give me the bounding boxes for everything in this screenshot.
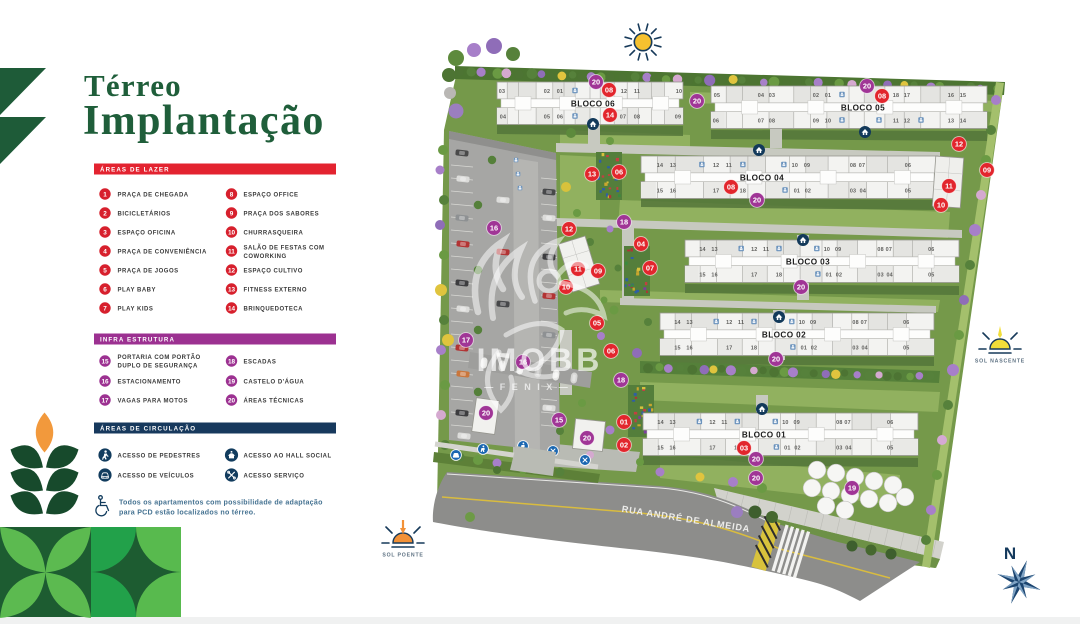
svg-text:BLOCO 02: BLOCO 02 [762, 330, 806, 339]
svg-text:06: 06 [557, 114, 563, 120]
svg-text:ACESSO DE VEÍCULOS: ACESSO DE VEÍCULOS [118, 471, 195, 479]
svg-text:16: 16 [670, 188, 676, 194]
svg-text:05: 05 [714, 93, 720, 99]
svg-text:20: 20 [693, 97, 701, 106]
svg-text:06: 06 [928, 247, 934, 253]
svg-text:03: 03 [877, 272, 883, 278]
svg-text:ACESSO AO HALL SOCIAL: ACESSO AO HALL SOCIAL [244, 453, 332, 459]
svg-text:11: 11 [945, 182, 953, 191]
svg-text:BLOCO 04: BLOCO 04 [740, 173, 784, 182]
svg-text:08: 08 [605, 86, 613, 95]
svg-text:04: 04 [500, 114, 506, 120]
svg-text:06: 06 [607, 347, 615, 356]
svg-text:08: 08 [634, 114, 640, 120]
svg-text:07: 07 [861, 320, 867, 326]
svg-text:15: 15 [657, 445, 663, 451]
svg-text:15: 15 [699, 272, 705, 278]
svg-text:01: 01 [620, 418, 628, 427]
svg-text:04: 04 [758, 93, 764, 99]
svg-text:17: 17 [462, 336, 470, 345]
svg-text:INFRA ESTRUTURA: INFRA ESTRUTURA [100, 337, 175, 344]
svg-text:10: 10 [825, 118, 831, 124]
svg-text:13: 13 [669, 420, 675, 426]
svg-text:10: 10 [824, 247, 830, 253]
svg-text:15: 15 [101, 358, 109, 365]
svg-text:PRAÇA DE JOGOS: PRAÇA DE JOGOS [118, 268, 179, 274]
svg-text:SALÃO DE FESTAS COM: SALÃO DE FESTAS COM [244, 245, 325, 252]
svg-text:07: 07 [844, 420, 850, 426]
svg-text:1: 1 [103, 191, 107, 198]
svg-text:04: 04 [637, 240, 646, 249]
svg-text:01: 01 [826, 272, 832, 278]
svg-text:ESPAÇO CULTIVO: ESPAÇO CULTIVO [244, 268, 303, 274]
svg-text:17: 17 [904, 93, 910, 99]
svg-text:17: 17 [713, 188, 719, 194]
svg-text:04: 04 [861, 345, 867, 351]
svg-text:20: 20 [482, 409, 490, 418]
svg-text:ÁREAS DE CIRCULAÇÃO: ÁREAS DE CIRCULAÇÃO [100, 426, 196, 433]
svg-text:19: 19 [228, 378, 236, 385]
svg-text:8: 8 [230, 191, 234, 198]
svg-text:09: 09 [594, 267, 602, 276]
svg-text:08: 08 [727, 183, 735, 192]
svg-text:12: 12 [709, 420, 715, 426]
svg-text:PLAY BABY: PLAY BABY [118, 287, 157, 293]
svg-text:04: 04 [860, 188, 866, 194]
svg-text:5: 5 [103, 267, 107, 274]
svg-text:18: 18 [776, 272, 782, 278]
svg-text:Todos os apartamentos com poss: Todos os apartamentos com possibilidade … [119, 499, 323, 507]
svg-text:14: 14 [657, 163, 663, 169]
svg-text:11: 11 [763, 247, 769, 253]
svg-text:7: 7 [103, 305, 107, 312]
svg-text:04: 04 [886, 272, 892, 278]
svg-text:PRAÇA DE CHEGADA: PRAÇA DE CHEGADA [118, 192, 189, 198]
svg-text:IMOBB: IMOBB [477, 342, 604, 378]
svg-text:08: 08 [877, 247, 883, 253]
svg-text:18: 18 [740, 188, 746, 194]
svg-text:ACESSO SERVIÇO: ACESSO SERVIÇO [244, 473, 305, 479]
svg-text:05: 05 [887, 445, 893, 451]
svg-text:07: 07 [758, 118, 764, 124]
svg-text:09: 09 [983, 166, 991, 175]
svg-text:15: 15 [555, 416, 563, 425]
svg-text:para PCD estão localizados no: para PCD estão localizados no térreo. [119, 509, 256, 517]
svg-text:DUPLO DE SEGURANÇA: DUPLO DE SEGURANÇA [118, 363, 199, 369]
svg-text:11: 11 [738, 320, 744, 326]
svg-text:ESPAÇO OFFICE: ESPAÇO OFFICE [244, 192, 299, 198]
svg-text:13: 13 [670, 163, 676, 169]
svg-text:01: 01 [825, 93, 831, 99]
svg-text:06: 06 [905, 163, 911, 169]
svg-text:16: 16 [669, 445, 675, 451]
svg-text:12: 12 [228, 267, 236, 274]
svg-text:13: 13 [228, 286, 236, 293]
svg-text:10: 10 [792, 163, 798, 169]
svg-text:11: 11 [726, 163, 732, 169]
svg-text:02: 02 [544, 89, 550, 95]
svg-text:11: 11 [228, 248, 235, 255]
svg-text:Implantação: Implantação [83, 98, 325, 144]
svg-text:17: 17 [726, 345, 732, 351]
svg-text:15: 15 [657, 188, 663, 194]
svg-text:10: 10 [228, 229, 236, 236]
svg-text:VAGAS PARA MOTOS: VAGAS PARA MOTOS [118, 398, 188, 404]
svg-text:03: 03 [740, 444, 748, 453]
svg-text:10: 10 [799, 320, 805, 326]
svg-text:BLOCO 01: BLOCO 01 [742, 430, 786, 439]
svg-text:10: 10 [937, 201, 945, 210]
svg-text:ÁREAS TÉCNICAS: ÁREAS TÉCNICAS [244, 396, 304, 404]
svg-text:13: 13 [588, 170, 596, 179]
svg-text:9: 9 [230, 210, 234, 217]
svg-text:6: 6 [103, 286, 107, 293]
svg-text:20: 20 [592, 78, 600, 87]
svg-text:07: 07 [646, 264, 654, 273]
svg-text:04: 04 [845, 445, 851, 451]
svg-text:16: 16 [711, 272, 717, 278]
svg-text:COWORKING: COWORKING [244, 254, 287, 260]
svg-text:16: 16 [490, 224, 498, 233]
svg-text:11: 11 [634, 89, 640, 95]
svg-text:08: 08 [836, 420, 842, 426]
svg-text:BLOCO 03: BLOCO 03 [786, 257, 830, 266]
svg-text:09: 09 [794, 420, 800, 426]
svg-text:20: 20 [583, 434, 591, 443]
svg-text:20: 20 [772, 355, 780, 364]
svg-text:20: 20 [753, 196, 761, 205]
svg-text:ESCADAS: ESCADAS [244, 359, 277, 365]
svg-text:14: 14 [657, 420, 663, 426]
svg-text:18: 18 [751, 345, 757, 351]
svg-text:06: 06 [887, 420, 893, 426]
svg-text:01: 01 [557, 89, 563, 95]
svg-text:01: 01 [794, 188, 800, 194]
svg-text:09: 09 [835, 247, 841, 253]
svg-text:06: 06 [903, 320, 909, 326]
svg-text:SOL POENTE: SOL POENTE [382, 553, 423, 559]
svg-text:SOL NASCENTE: SOL NASCENTE [975, 359, 1025, 365]
svg-text:18: 18 [617, 376, 625, 385]
svg-text:19: 19 [848, 484, 856, 493]
svg-text:09: 09 [813, 118, 819, 124]
svg-text:17: 17 [709, 445, 715, 451]
svg-text:05: 05 [544, 114, 550, 120]
svg-text:14: 14 [699, 247, 705, 253]
svg-text:CASTELO D'ÁGUA: CASTELO D'ÁGUA [244, 378, 305, 385]
svg-text:06: 06 [615, 168, 623, 177]
svg-text:07: 07 [886, 247, 892, 253]
svg-text:11: 11 [893, 118, 899, 124]
svg-text:10: 10 [676, 89, 682, 95]
svg-text:08: 08 [852, 320, 858, 326]
svg-text:08: 08 [878, 92, 886, 101]
svg-text:01: 01 [801, 345, 807, 351]
svg-text:07: 07 [620, 114, 626, 120]
svg-text:ESTACIONAMENTO: ESTACIONAMENTO [118, 379, 181, 385]
svg-text:PRAÇA DE CONVENIÊNCIA: PRAÇA DE CONVENIÊNCIA [118, 247, 207, 255]
svg-text:17: 17 [101, 397, 109, 404]
svg-text:12: 12 [726, 320, 732, 326]
svg-text:12: 12 [955, 140, 963, 149]
svg-text:15: 15 [674, 345, 680, 351]
svg-text:06: 06 [713, 118, 719, 124]
svg-text:11: 11 [721, 420, 727, 426]
svg-text:18: 18 [228, 358, 236, 365]
svg-text:02: 02 [811, 345, 817, 351]
svg-text:N: N [1004, 544, 1016, 563]
svg-text:02: 02 [805, 188, 811, 194]
svg-text:— F E N I X —: — F E N I X — [484, 382, 570, 392]
svg-text:ÁREAS DE LAZER: ÁREAS DE LAZER [100, 167, 170, 174]
svg-text:13: 13 [686, 320, 692, 326]
svg-text:08: 08 [769, 118, 775, 124]
svg-text:16: 16 [686, 345, 692, 351]
svg-text:03: 03 [850, 188, 856, 194]
svg-text:03: 03 [499, 89, 505, 95]
svg-text:12: 12 [713, 163, 719, 169]
svg-text:20: 20 [797, 283, 805, 292]
svg-text:PORTARIA COM PORTÃO: PORTARIA COM PORTÃO [118, 354, 201, 361]
svg-text:18: 18 [620, 218, 628, 227]
svg-text:02: 02 [794, 445, 800, 451]
svg-text:07: 07 [859, 163, 865, 169]
svg-text:13: 13 [711, 247, 717, 253]
svg-text:13: 13 [948, 118, 954, 124]
svg-text:12: 12 [904, 118, 910, 124]
svg-text:03: 03 [769, 93, 775, 99]
svg-text:15: 15 [960, 93, 966, 99]
svg-text:ACESSO DE PEDESTRES: ACESSO DE PEDESTRES [118, 453, 201, 459]
svg-text:12: 12 [565, 225, 573, 234]
svg-text:20: 20 [752, 455, 760, 464]
svg-text:03: 03 [852, 345, 858, 351]
svg-text:PRAÇA DOS SABORES: PRAÇA DOS SABORES [244, 211, 320, 217]
svg-text:14: 14 [228, 305, 236, 312]
svg-text:17: 17 [751, 272, 757, 278]
svg-text:20: 20 [228, 397, 236, 404]
svg-text:05: 05 [905, 188, 911, 194]
svg-text:09: 09 [810, 320, 816, 326]
svg-text:16: 16 [948, 93, 954, 99]
svg-text:BICICLETÁRIOS: BICICLETÁRIOS [118, 210, 171, 217]
svg-text:BRINQUEDOTECA: BRINQUEDOTECA [244, 306, 304, 312]
svg-text:3: 3 [103, 229, 107, 236]
svg-text:05: 05 [903, 345, 909, 351]
svg-text:12: 12 [751, 247, 757, 253]
svg-text:16: 16 [101, 378, 109, 385]
svg-text:08: 08 [850, 163, 856, 169]
svg-text:14: 14 [674, 320, 680, 326]
svg-text:20: 20 [752, 474, 760, 483]
svg-text:12: 12 [621, 89, 627, 95]
svg-text:20: 20 [863, 82, 871, 91]
svg-text:05: 05 [593, 319, 601, 328]
svg-text:03: 03 [836, 445, 842, 451]
svg-text:02: 02 [813, 93, 819, 99]
svg-text:14: 14 [960, 118, 966, 124]
svg-text:05: 05 [928, 272, 934, 278]
svg-text:BLOCO 06: BLOCO 06 [571, 99, 615, 108]
svg-text:14: 14 [606, 111, 615, 120]
svg-text:PLAY KIDS: PLAY KIDS [118, 306, 154, 312]
svg-text:09: 09 [804, 163, 810, 169]
svg-text:09: 09 [675, 114, 681, 120]
svg-text:BLOCO 05: BLOCO 05 [841, 103, 885, 112]
svg-text:4: 4 [103, 248, 107, 255]
svg-text:2: 2 [103, 210, 107, 217]
svg-text:02: 02 [836, 272, 842, 278]
svg-text:CHURRASQUEIRA: CHURRASQUEIRA [244, 230, 304, 236]
svg-text:01: 01 [784, 445, 790, 451]
svg-text:FITNESS EXTERNO: FITNESS EXTERNO [244, 287, 308, 293]
svg-text:ESPAÇO OFICINA: ESPAÇO OFICINA [118, 230, 176, 236]
svg-text:18: 18 [893, 93, 899, 99]
svg-text:10: 10 [782, 420, 788, 426]
svg-text:02: 02 [620, 441, 628, 450]
